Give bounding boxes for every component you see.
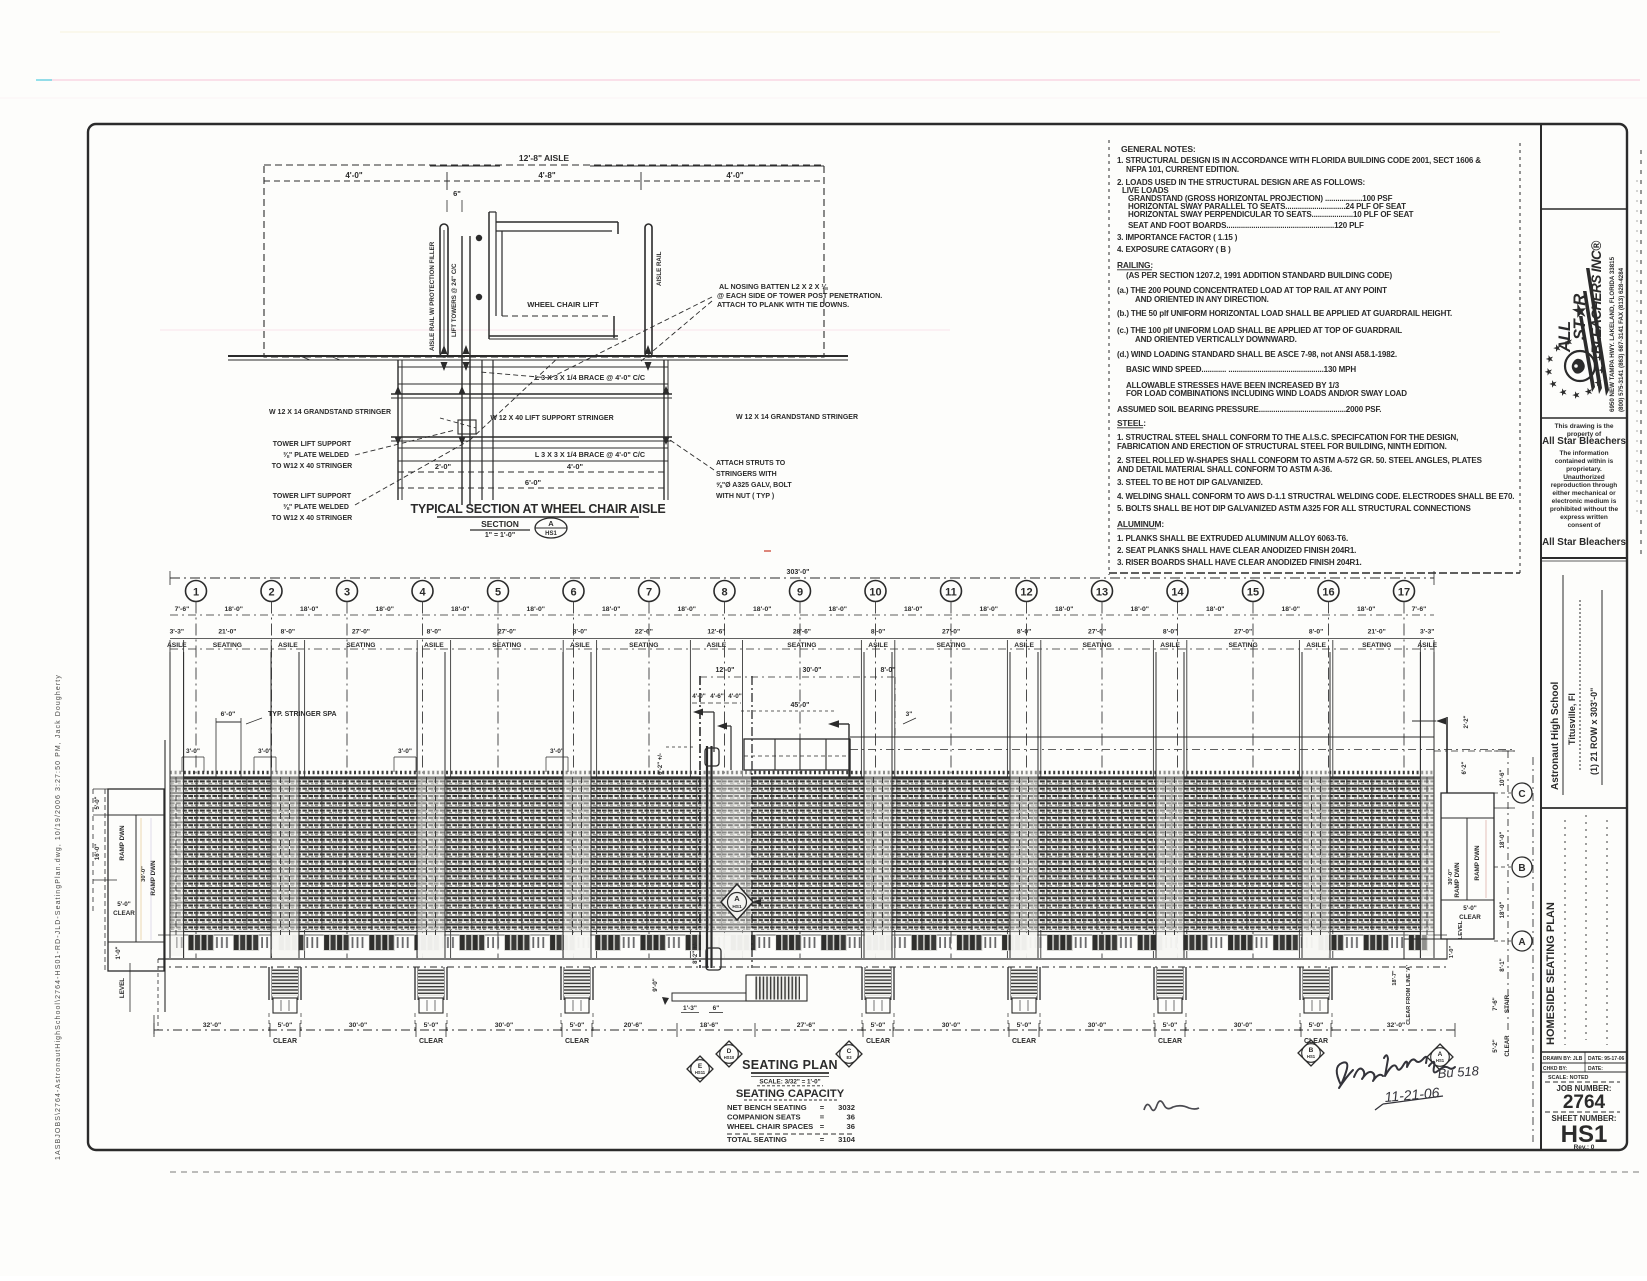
svg-text:CLEAR: CLEAR: [273, 1038, 297, 1045]
svg-text:27'-0": 27'-0": [352, 629, 370, 636]
svg-text:303'-0": 303'-0": [787, 569, 810, 576]
svg-text:(a.) THE 200 POUND CONCENTRAT: (a.) THE 200 POUND CONCENTRATED LOAD AT …: [1117, 286, 1387, 295]
svg-text:6'-2": 6'-2": [1462, 761, 1468, 774]
svg-text:COMPANION SEATS: COMPANION SEATS: [727, 1113, 801, 1122]
svg-text:30'-0": 30'-0": [1088, 1022, 1106, 1029]
svg-text:ASILE: ASILE: [1014, 642, 1034, 649]
svg-text:1. STRUCTURAL DESIGN IS IN ACC: 1. STRUCTURAL DESIGN IS IN ACCORDANCE WI…: [1117, 156, 1481, 165]
svg-text:5'-0": 5'-0": [1463, 905, 1477, 912]
svg-text:CHKD BY:: CHKD BY:: [1543, 1066, 1567, 1072]
svg-text:B: B: [1518, 863, 1525, 874]
svg-text:18'-0": 18'-0": [527, 606, 545, 613]
svg-text:27'-0": 27'-0": [1234, 629, 1252, 636]
svg-text:18'-0": 18'-0": [1499, 902, 1506, 919]
svg-text:HS1: HS1: [1436, 1058, 1445, 1063]
svg-text:LEVEL: LEVEL: [1458, 920, 1464, 939]
svg-text:CLEAR: CLEAR: [419, 1038, 443, 1045]
svg-text:18'-6": 18'-6": [700, 1022, 718, 1029]
svg-text:NFPA 101, CURRENT EDITION.: NFPA 101, CURRENT EDITION.: [1126, 165, 1239, 174]
svg-text:7: 7: [646, 587, 652, 599]
svg-text:3'-3": 3'-3": [170, 629, 184, 636]
svg-text:21'-0": 21'-0": [1368, 629, 1386, 636]
svg-text:AISLE RAIL: AISLE RAIL: [656, 251, 663, 286]
svg-text:6: 6: [570, 587, 576, 599]
svg-text:4'-0": 4'-0": [728, 693, 742, 700]
svg-text:SEATING: SEATING: [492, 642, 521, 649]
svg-text:2764: 2764: [1563, 1092, 1606, 1113]
svg-text:=: =: [820, 1122, 825, 1131]
svg-text:TOWER LIFT SUPPORT: TOWER LIFT SUPPORT: [273, 493, 352, 500]
svg-text:WHEEL CHAIR LIFT: WHEEL CHAIR LIFT: [527, 300, 599, 309]
svg-text:9'-0": 9'-0": [652, 978, 659, 991]
svg-text:18'-7": 18'-7": [1392, 970, 1398, 986]
svg-text:8'-0": 8'-0": [871, 629, 885, 636]
svg-text:(AS PER SECTION 1207.2, 1991 A: (AS PER SECTION 1207.2, 1991 ADDITION ST…: [1126, 271, 1392, 280]
svg-text:STAIR: STAIR: [1504, 994, 1511, 1013]
svg-text:SEATING: SEATING: [1228, 642, 1257, 649]
svg-text:4'-0": 4'-0": [567, 462, 584, 471]
svg-text:This drawing is the: This drawing is the: [1555, 423, 1614, 430]
svg-text:ASILE: ASILE: [278, 642, 298, 649]
svg-text:4: 4: [419, 587, 426, 599]
svg-text:1'-0": 1'-0": [116, 946, 122, 959]
svg-text:TYPICAL SECTION AT WHEEL CHAIR: TYPICAL SECTION AT WHEEL CHAIR AISLE: [410, 502, 665, 516]
svg-text:36: 36: [847, 1113, 855, 1122]
svg-text:The information: The information: [1559, 450, 1608, 457]
svg-text:22'-6": 22'-6": [635, 629, 653, 636]
svg-text:16'-0": 16'-0": [95, 844, 101, 860]
svg-text:18'-0": 18'-0": [1055, 606, 1073, 613]
svg-text:C: C: [847, 1048, 852, 1055]
svg-text:14: 14: [1171, 587, 1184, 599]
svg-text:TOTAL SEATING: TOTAL SEATING: [727, 1135, 787, 1144]
svg-text:RAMP DWN: RAMP DWN: [1454, 862, 1461, 898]
svg-text:HS10: HS10: [724, 1055, 735, 1060]
svg-text:either mechanical or: either mechanical or: [1552, 490, 1616, 497]
svg-text:A: A: [734, 894, 740, 903]
svg-text:CLEAR: CLEAR: [1012, 1038, 1036, 1045]
svg-text:30'-0": 30'-0": [942, 1022, 960, 1029]
svg-text:ATTACH STRUTS TO: ATTACH STRUTS TO: [716, 460, 786, 467]
svg-text:18'-0": 18'-0": [451, 606, 469, 613]
svg-text:18'-0": 18'-0": [980, 606, 998, 613]
svg-text:32'-0": 32'-0": [203, 1022, 221, 1029]
svg-text:1" = 1'-0": 1" = 1'-0": [485, 532, 515, 539]
svg-text:1'-3": 1'-3": [683, 1005, 697, 1012]
svg-text:⅜" PLATE WELDED: ⅜" PLATE WELDED: [283, 504, 349, 511]
svg-text:CLEAR FROM LINE 'A': CLEAR FROM LINE 'A': [1406, 964, 1412, 1025]
svg-text:Titusville, Fl: Titusville, Fl: [1567, 693, 1577, 745]
svg-text:ST★R: ST★R: [1571, 294, 1589, 340]
svg-text:8'-0": 8'-0": [1309, 629, 1323, 636]
svg-text:12'-6": 12'-6": [707, 629, 725, 636]
svg-text:ASILE: ASILE: [570, 642, 590, 649]
svg-text:ASILE: ASILE: [1160, 642, 1180, 649]
svg-text:=: =: [820, 1103, 825, 1112]
svg-text:10'-6": 10'-6": [1499, 770, 1506, 787]
svg-text:2'-2": 2'-2": [1464, 715, 1470, 728]
svg-text:SEATING: SEATING: [1082, 642, 1111, 649]
svg-text:SCALE: 3/32" = 1'-0": SCALE: 3/32" = 1'-0": [759, 1079, 820, 1086]
svg-text:CLEAR: CLEAR: [565, 1038, 589, 1045]
svg-text:DATE:: DATE:: [1588, 1066, 1603, 1072]
svg-text:1. PLANKS SHALL BE EXTRUDED AL: 1. PLANKS SHALL BE EXTRUDED ALUMINUM ALL…: [1117, 534, 1348, 543]
svg-text:18'-0": 18'-0": [829, 606, 847, 613]
svg-text:CLEAR: CLEAR: [866, 1038, 890, 1045]
svg-text:E3: E3: [846, 1055, 852, 1060]
svg-text:4'-0": 4'-0": [726, 171, 743, 180]
svg-text:20'-6": 20'-6": [624, 1022, 642, 1029]
svg-text:WHEEL CHAIR SPACES: WHEEL CHAIR SPACES: [727, 1122, 813, 1131]
svg-text:36: 36: [847, 1122, 855, 1131]
svg-text:Astronaut High School: Astronaut High School: [1550, 681, 1561, 790]
svg-text:30'-0": 30'-0": [1234, 1022, 1252, 1029]
svg-text:STEEL:: STEEL:: [1117, 418, 1146, 428]
svg-text:3. STEEL TO BE HOT DIP GALVANI: 3. STEEL TO BE HOT DIP GALVANIZED.: [1117, 478, 1263, 487]
svg-text:27'-0": 27'-0": [942, 629, 960, 636]
svg-text:(b.) THE 50 plf UNIFORM HORIZ: (b.) THE 50 plf UNIFORM HORIZONTAL LOAD …: [1117, 309, 1452, 318]
svg-text:4. WELDING SHALL CONFORM TO AW: 4. WELDING SHALL CONFORM TO AWS D-1.1 ST…: [1117, 492, 1514, 501]
svg-text:18'-0": 18'-0": [300, 606, 318, 613]
svg-text:A: A: [1438, 1051, 1443, 1058]
svg-text:AND DETAIL MATERIAL SHALL CONF: AND DETAIL MATERIAL SHALL CONFORM TO AST…: [1117, 465, 1332, 474]
svg-text:HS1: HS1: [545, 531, 557, 537]
svg-text:27'-0": 27'-0": [1088, 629, 1106, 636]
svg-text:reproduction through: reproduction through: [1551, 482, 1617, 489]
svg-text:2'-0": 2'-0": [435, 462, 452, 471]
svg-text:consent of: consent of: [1568, 522, 1602, 529]
svg-text:4'-6": 4'-6": [710, 693, 724, 700]
svg-text:W 12 X 14 GRANDSTAND STRINGER: W 12 X 14 GRANDSTAND STRINGER: [269, 409, 391, 416]
svg-text:5'-0": 5'-0": [278, 1022, 293, 1029]
svg-text:L 3 X 3 X 1/4 BRACE @ 4'-0" C: L 3 X 3 X 1/4 BRACE @ 4'-0" C/C: [535, 450, 645, 459]
svg-text:@ EACH SIDE OF TOWER POST PENE: @ EACH SIDE OF TOWER POST PENETRATION.: [717, 291, 882, 300]
svg-text:18'-0": 18'-0": [602, 606, 620, 613]
svg-text:6": 6": [713, 1005, 720, 1012]
svg-text:5'-0": 5'-0": [95, 796, 101, 809]
svg-text:18'-0": 18'-0": [1206, 606, 1224, 613]
svg-text:30'-0": 30'-0": [495, 1022, 513, 1029]
svg-text:9: 9: [797, 587, 803, 599]
svg-text:BLEACHERS INC®: BLEACHERS INC®: [1589, 241, 1604, 354]
svg-text:8'-0": 8'-0": [1017, 629, 1031, 636]
svg-text:17: 17: [1398, 587, 1410, 599]
svg-text:SEATING: SEATING: [629, 642, 658, 649]
svg-text:6'-0": 6'-0": [525, 478, 542, 487]
svg-text:10: 10: [869, 587, 881, 599]
svg-text:ASSUMED SOIL BEARING PRESSURE.: ASSUMED SOIL BEARING PRESSURE...........…: [1117, 405, 1381, 414]
svg-text:Rev.: 0: Rev.: 0: [1574, 1144, 1595, 1151]
svg-text:SEATING PLAN: SEATING PLAN: [742, 1058, 838, 1072]
svg-text:2: 2: [268, 587, 274, 599]
svg-text:D: D: [727, 1048, 732, 1055]
svg-text:HOMESIDE SEATING PLAN: HOMESIDE SEATING PLAN: [1545, 902, 1557, 1045]
svg-text:RAILING:: RAILING:: [1117, 260, 1153, 270]
svg-text:contained within is: contained within is: [1555, 458, 1614, 465]
svg-text:18'-0": 18'-0": [678, 606, 696, 613]
svg-text:⅝"Ø A325 GALV, BOLT: ⅝"Ø A325 GALV, BOLT: [716, 482, 792, 489]
svg-text:7'-6": 7'-6": [1412, 606, 1427, 613]
svg-text:3: 3: [344, 587, 350, 599]
svg-text:4'-0": 4'-0": [692, 693, 706, 700]
svg-text:electronic medium is: electronic medium is: [1552, 498, 1617, 505]
svg-text:18'-0": 18'-0": [225, 606, 243, 613]
svg-text:27'-6": 27'-6": [797, 1022, 815, 1029]
svg-text:8'-0": 8'-0": [573, 629, 587, 636]
svg-text:5'-2": 5'-2": [1492, 1039, 1499, 1052]
svg-text:2. STEEL ROLLED W-SHAPES SHALL: 2. STEEL ROLLED W-SHAPES SHALL CONFORM T…: [1117, 456, 1483, 465]
svg-text:C: C: [1518, 789, 1525, 800]
svg-text:B: B: [1309, 1047, 1314, 1054]
svg-text:18'-0": 18'-0": [1499, 832, 1506, 849]
svg-text:7'-6": 7'-6": [175, 606, 190, 613]
svg-text:28'-6": 28'-6": [793, 629, 811, 636]
svg-text:3'-0": 3'-0": [398, 748, 412, 755]
svg-text:⅜" PLATE WELDED: ⅜" PLATE WELDED: [283, 452, 349, 459]
svg-text:1: 1: [193, 587, 199, 599]
svg-text:ALUMINUM:: ALUMINUM:: [1117, 519, 1164, 529]
svg-text:AND ORIENTED IN ANY DIRECTION.: AND ORIENTED IN ANY DIRECTION.: [1135, 295, 1269, 304]
svg-text:4. EXPOSURE CATAGORY ( B ): 4. EXPOSURE CATAGORY ( B ): [1117, 245, 1231, 254]
svg-text:HS1: HS1: [732, 904, 742, 910]
svg-text:18'-0": 18'-0": [376, 606, 394, 613]
svg-text:8: 8: [721, 587, 727, 599]
svg-text:5'-0": 5'-0": [1163, 1022, 1178, 1029]
svg-text:FOR LOAD COMBINATIONS INCLUDIN: FOR LOAD COMBINATIONS INCLUDING WIND LOA…: [1126, 389, 1407, 398]
svg-text:3. IMPORTANCE FACTOR ( 1.15 ): 3. IMPORTANCE FACTOR ( 1.15 ): [1117, 233, 1238, 242]
svg-text:27'-0": 27'-0": [498, 629, 516, 636]
svg-text:LEVEL: LEVEL: [119, 978, 126, 998]
svg-text:Bu 518: Bu 518: [1437, 1063, 1480, 1081]
svg-text:ASILE: ASILE: [424, 642, 444, 649]
svg-text:3032: 3032: [838, 1103, 855, 1112]
svg-text:A: A: [548, 519, 554, 528]
svg-text:DRAWN BY: JLB: DRAWN BY: JLB: [1543, 1056, 1583, 1062]
svg-text:4'-0": 4'-0": [345, 171, 362, 180]
svg-text:AND ORIENTED VERTICALLY DOWNWA: AND ORIENTED VERTICALLY DOWNWARD.: [1135, 335, 1297, 344]
svg-text:8'-0": 8'-0": [281, 629, 295, 636]
svg-text:8'-0": 8'-0": [880, 667, 895, 674]
svg-text:3'-0": 3'-0": [258, 748, 272, 755]
svg-text:TO W12 X 40 STRINGER: TO W12 X 40 STRINGER: [272, 515, 352, 522]
svg-text:=: =: [820, 1113, 825, 1122]
svg-text:6": 6": [453, 189, 461, 198]
svg-text:13: 13: [1096, 587, 1108, 599]
svg-text:Unauthorized: Unauthorized: [1563, 474, 1605, 481]
svg-text:LIFT TOWERS @ 24" C/C: LIFT TOWERS @ 24" C/C: [451, 263, 458, 337]
svg-text:All Star Bleachers: All Star Bleachers: [1542, 436, 1626, 447]
svg-text:7'-6": 7'-6": [1492, 997, 1499, 1010]
svg-text:3'-3": 3'-3": [1420, 629, 1434, 636]
svg-text:TO W12 X 40 STRINGER: TO W12 X 40 STRINGER: [272, 463, 352, 470]
svg-text:STRINGERS WITH: STRINGERS WITH: [716, 471, 777, 478]
svg-text:18'-0": 18'-0": [1282, 606, 1300, 613]
svg-text:30'-0": 30'-0": [141, 866, 147, 882]
svg-text:HS11: HS11: [695, 1070, 706, 1075]
svg-text:3": 3": [906, 711, 913, 718]
svg-text:W 12 X 40 LIFT SUPPORT STRINGE: W 12 X 40 LIFT SUPPORT STRINGER: [490, 415, 613, 422]
svg-text:4'-8": 4'-8": [538, 171, 555, 180]
svg-text:SEATING: SEATING: [346, 642, 375, 649]
svg-text:BASIC WIND SPEED............: BASIC WIND SPEED............ ...........…: [1126, 365, 1356, 374]
svg-text:proprietary.: proprietary.: [1566, 466, 1602, 473]
svg-text:21'-0": 21'-0": [218, 629, 236, 636]
svg-text:GENERAL NOTES:: GENERAL NOTES:: [1121, 144, 1196, 154]
svg-text:(d.) WIND LOADING STANDARD SH: (d.) WIND LOADING STANDARD SHALL BE ASCE…: [1117, 350, 1397, 359]
svg-text:HORIZONTAL SWAY PERPENDICULAR: HORIZONTAL SWAY PERPENDICULAR TO SEATS..…: [1128, 210, 1414, 219]
svg-text:SCALE: NOTED: SCALE: NOTED: [1548, 1075, 1589, 1081]
svg-text:3. RISER BOARDS SHALL HAVE CLE: 3. RISER BOARDS SHALL HAVE CLEAR ANODIZE…: [1117, 558, 1362, 567]
svg-text:5'-0": 5'-0": [570, 1022, 585, 1029]
svg-text:WITH NUT ( TYP ): WITH NUT ( TYP ): [716, 493, 774, 500]
svg-text:6'-2" +/-: 6'-2" +/-: [658, 753, 664, 775]
svg-text:SEATING: SEATING: [213, 642, 242, 649]
svg-text:5'-0": 5'-0": [871, 1022, 886, 1029]
svg-text:W 12 X 14 GRANDSTAND STRINGER: W 12 X 14 GRANDSTAND STRINGER: [736, 414, 858, 421]
svg-text:5'-0": 5'-0": [1309, 1022, 1324, 1029]
svg-text:18'-0": 18'-0": [904, 606, 922, 613]
svg-text:1ASBJOBS\2764-AstronautHighSch: 1ASBJOBS\2764-AstronautHighSchool\2764-H…: [55, 674, 62, 1160]
svg-text:ATTACH TO PLANK WITH TIE DOWNS: ATTACH TO PLANK WITH TIE DOWNS.: [717, 300, 849, 309]
svg-text:5'-0": 5'-0": [117, 901, 131, 908]
svg-text:TOWER LIFT SUPPORT: TOWER LIFT SUPPORT: [273, 441, 352, 448]
svg-text:SEATING: SEATING: [1362, 642, 1391, 649]
svg-text:3'-0": 3'-0": [186, 748, 200, 755]
svg-text:12: 12: [1020, 587, 1032, 599]
svg-text:CLEAR: CLEAR: [113, 910, 135, 917]
svg-text:SEATING CAPACITY: SEATING CAPACITY: [736, 1088, 845, 1100]
svg-text:SEATING: SEATING: [787, 642, 816, 649]
svg-text:L 3 X 3 X 1/4 BRACE @ 4'-0" C: L 3 X 3 X 1/4 BRACE @ 4'-0" C/C: [535, 373, 645, 382]
svg-text:SECTION: SECTION: [481, 519, 519, 529]
svg-text:ASILE: ASILE: [868, 642, 888, 649]
svg-text:18'-0": 18'-0": [1357, 606, 1375, 613]
svg-text:E: E: [698, 1063, 703, 1070]
svg-text:15: 15: [1247, 587, 1259, 599]
svg-text:TYP. STRINGER SPA: TYP. STRINGER SPA: [268, 711, 337, 718]
svg-text:HS1: HS1: [1307, 1054, 1316, 1059]
svg-text:RAMP DWN: RAMP DWN: [119, 825, 126, 861]
svg-text:30'-0": 30'-0": [803, 667, 822, 674]
svg-text:FABRICATION AND ERECTION OF: FABRICATION AND ERECTION OF STRUCTURAL S…: [1117, 442, 1447, 451]
svg-text:RAMP DWN: RAMP DWN: [1474, 845, 1481, 881]
svg-text:45'-0": 45'-0": [791, 702, 810, 709]
svg-text:1'-0": 1'-0": [1449, 946, 1455, 959]
svg-text:3104: 3104: [838, 1135, 856, 1144]
svg-text:3'-0": 3'-0": [550, 748, 564, 755]
svg-text:12'-8" AISLE: 12'-8" AISLE: [519, 153, 569, 163]
svg-text:18'-0": 18'-0": [753, 606, 771, 613]
svg-text:2. SEAT PLANKS SHALL HAVE CLEA: 2. SEAT PLANKS SHALL HAVE CLEAR ANODIZED…: [1117, 546, 1356, 555]
svg-text:5'-0": 5'-0": [424, 1022, 439, 1029]
svg-text:8'-2" +/-: 8'-2" +/-: [693, 942, 699, 964]
svg-text:8'-1": 8'-1": [1499, 958, 1506, 971]
svg-text:CLEAR: CLEAR: [1504, 1035, 1511, 1057]
svg-text:SEATING: SEATING: [936, 642, 965, 649]
svg-text:5'-0": 5'-0": [1017, 1022, 1032, 1029]
svg-text:ASILE: ASILE: [1306, 642, 1326, 649]
svg-text:5: 5: [495, 587, 501, 599]
svg-text:18'-0": 18'-0": [1131, 606, 1149, 613]
svg-text:30'-0": 30'-0": [349, 1022, 367, 1029]
svg-text:CLEAR: CLEAR: [1459, 914, 1481, 921]
svg-text:32'-0": 32'-0": [1387, 1022, 1405, 1029]
svg-text:ASILE: ASILE: [707, 642, 727, 649]
svg-text:(1) 21 ROW x 303'-0": (1) 21 ROW x 303'-0": [1589, 688, 1599, 775]
svg-text:(c.) THE 100 plf UNIFORM LOAD: (c.) THE 100 plf UNIFORM LOAD SHALL BE A…: [1117, 326, 1402, 335]
svg-text:(800) 575-3141 (863) 687-3: (800) 575-3141 (863) 687-3141 FAX (813) …: [1618, 267, 1625, 412]
svg-text:AISLE RAIL W/ PROTECTION FILLE: AISLE RAIL W/ PROTECTION FILLER: [429, 241, 436, 351]
svg-text:6950 NEW TAMPA HWY. LAKELAND: 6950 NEW TAMPA HWY. LAKELAND, FLORIDA 33…: [1609, 256, 1616, 412]
svg-text:8'-0": 8'-0": [1163, 629, 1177, 636]
svg-text:8'-0": 8'-0": [427, 629, 441, 636]
svg-text:prohibited without the: prohibited without the: [1550, 506, 1619, 513]
svg-text:1. STRUCTRAL STEEL SHALL CONFO: 1. STRUCTRAL STEEL SHALL CONFORM TO THE …: [1117, 433, 1458, 442]
svg-text:5. BOLTS SHALL BE HOT DIP GALV: 5. BOLTS SHALL BE HOT DIP GALVANIZED AST…: [1117, 504, 1471, 513]
svg-text:AL NOSING BATTEN L2 X 2 X ⅛: AL NOSING BATTEN L2 X 2 X ⅛: [719, 282, 828, 291]
svg-text:CLEAR: CLEAR: [1158, 1038, 1182, 1045]
svg-text:express written: express written: [1560, 514, 1608, 521]
svg-text:16: 16: [1322, 587, 1334, 599]
svg-text:All Star Bleachers: All Star Bleachers: [1542, 537, 1626, 548]
svg-text:6'-0": 6'-0": [221, 711, 236, 718]
svg-text:NET BENCH SEATING: NET BENCH SEATING: [727, 1103, 807, 1112]
svg-text:A: A: [1518, 937, 1525, 948]
svg-text:DATE: 95-17-06: DATE: 95-17-06: [1588, 1056, 1625, 1062]
svg-text:11: 11: [945, 587, 957, 599]
svg-text:SEAT AND FOOT BOARDS..........: SEAT AND FOOT BOARDS....................…: [1128, 221, 1364, 230]
svg-text:=: =: [820, 1135, 825, 1144]
svg-text:12'-0": 12'-0": [716, 667, 735, 674]
